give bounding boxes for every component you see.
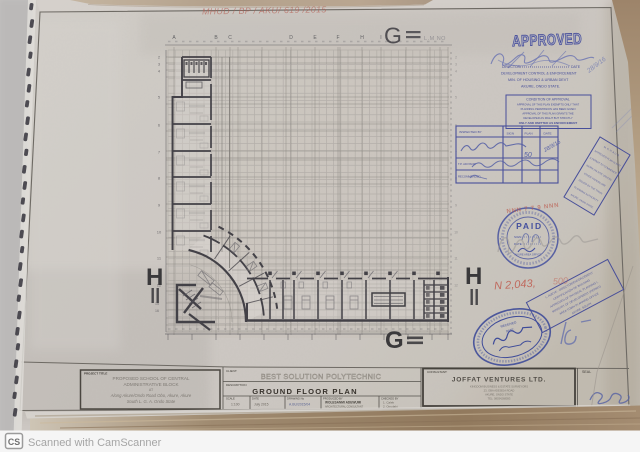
svg-text:G: G	[384, 23, 402, 49]
svg-text:ADMINISTRATIVE BLOCK: ADMINISTRATIVE BLOCK	[123, 382, 179, 387]
svg-text:3: 3	[455, 63, 457, 67]
svg-text:Along Akure/Ondo Road Obo, Aku: Along Akure/Ondo Road Obo, Akure, Akure	[110, 393, 192, 398]
svg-text:I: I	[380, 35, 381, 41]
svg-text:1:100: 1:100	[231, 403, 240, 407]
svg-text:G: G	[385, 327, 404, 354]
svg-text:12: 12	[454, 284, 458, 288]
svg-text:DEVELOPMENT CONTROL & ENFORCEM: DEVELOPMENT CONTROL & ENFORCEMENT	[501, 72, 578, 76]
svg-text:H: H	[360, 35, 364, 41]
svg-text:BEST SOLUTION POLYTECHNIC: BEST SOLUTION POLYTECHNIC	[261, 372, 382, 381]
svg-text:TEL: 08034268593: TEL: 08034268593	[488, 397, 511, 401]
svg-text:10: 10	[454, 231, 458, 235]
svg-text:MIN. OF HOUSING & URBAN DEVT: MIN. OF HOUSING & URBAN DEVT	[508, 78, 569, 82]
svg-text:KINGDOM BUSINESS & ESTATE SURV: KINGDOM BUSINESS & ESTATE SURVEYORS	[470, 385, 528, 389]
svg-text:PROPOSED SCHOOL OF CENTRAL: PROPOSED SCHOOL OF CENTRAL	[113, 376, 190, 381]
svg-text:23, OBA ADESIDA ROAD: 23, OBA ADESIDA ROAD	[484, 389, 515, 393]
svg-text:July 2015: July 2015	[254, 403, 269, 407]
svg-text:SIGN: SIGN	[507, 132, 515, 136]
svg-text:SEAL: SEAL	[582, 370, 591, 374]
svg-text:DATE: DATE	[571, 65, 581, 69]
svg-text:D: D	[289, 35, 293, 41]
svg-text:F: F	[336, 35, 339, 41]
svg-text:South L. G. A. Ondo State: South L. G. A. Ondo State	[127, 399, 176, 404]
svg-text:SCALE: SCALE	[226, 397, 235, 401]
svg-text:INSPECTED BY: INSPECTED BY	[459, 130, 482, 134]
svg-text:WOLESANMI ADEWUMI: WOLESANMI ADEWUMI	[325, 401, 361, 405]
svg-text:50: 50	[524, 152, 532, 159]
svg-text:DRAWING No: DRAWING No	[287, 397, 305, 401]
svg-text:5: 5	[455, 96, 457, 100]
svg-text:DESCRIPTION: DESCRIPTION	[226, 383, 247, 387]
svg-text:DEVELOPER AS RIGHT BUT STRICTL: DEVELOPER AS RIGHT BUT STRICTLY	[523, 116, 572, 120]
svg-text:C: C	[228, 35, 232, 41]
svg-text:DIRECTOR: DIRECTOR	[502, 65, 521, 69]
svg-text:RECOMMENDED: RECOMMENDED	[458, 175, 481, 179]
svg-text:16: 16	[155, 309, 159, 313]
svg-text:JOFFAT VENTURES LTD.: JOFFAT VENTURES LTD.	[452, 377, 547, 384]
svg-text:H: H	[146, 264, 163, 291]
svg-text:CLIENT:: CLIENT:	[226, 369, 237, 373]
svg-text:AKURE, ONDO STATE: AKURE, ONDO STATE	[485, 393, 513, 397]
svg-text:APPROVAL OF THIS PLAN GRANTS T: APPROVAL OF THIS PLAN GRANTS THE	[522, 112, 573, 116]
svg-text:AKURE, ONDO STATE.: AKURE, ONDO STATE.	[521, 85, 560, 89]
svg-text:AKURE AREA OFFICE: AKURE AREA OFFICE	[515, 253, 542, 257]
svg-text:ONLY AND OMITTED AS ENFORCEMEN: ONLY AND OMITTED AS ENFORCEMENT	[519, 121, 578, 125]
svg-text:9: 9	[455, 204, 457, 208]
svg-text:PAID: PAID	[516, 221, 543, 231]
svg-text:GROUND FLOOR PLAN: GROUND FLOOR PLAN	[252, 387, 358, 396]
svg-text:DATE: DATE	[252, 397, 259, 401]
svg-text:PLANNING PERMISSION HAS BEEN G: PLANNING PERMISSION HAS BEEN GIVEN	[521, 107, 576, 111]
svg-text:2: 2	[455, 56, 457, 60]
svg-text:CONDITION OF APPROVAL: CONDITION OF APPROVAL	[526, 98, 570, 102]
svg-text:APPROVED: APPROVED	[512, 31, 583, 50]
svg-text:CS: CS	[8, 437, 20, 447]
svg-text:APPROVAL OF THIS PLAN EXEMPTS: APPROVAL OF THIS PLAN EXEMPTS ONLY THAT	[517, 103, 580, 107]
svg-text:4: 4	[455, 70, 457, 74]
svg-text:PLAN: PLAN	[525, 132, 533, 136]
svg-text:500: 500	[553, 275, 569, 286]
svg-text:PROJECT TITLE: PROJECT TITLE	[84, 372, 107, 376]
svg-text:11: 11	[454, 257, 458, 261]
svg-text:CONSULTANT:: CONSULTANT:	[427, 370, 448, 374]
svg-text:10: 10	[157, 230, 162, 235]
svg-text:SIGN:: SIGN:	[514, 235, 522, 239]
svg-text:A.BU/2015/04: A.BU/2015/04	[289, 403, 310, 407]
svg-text:L.M NO: L.M NO	[424, 36, 446, 42]
svg-text:H: H	[465, 263, 482, 290]
svg-text:Scanned with CamScanner: Scanned with CamScanner	[28, 437, 162, 449]
svg-text:DATE: DATE	[544, 132, 552, 136]
